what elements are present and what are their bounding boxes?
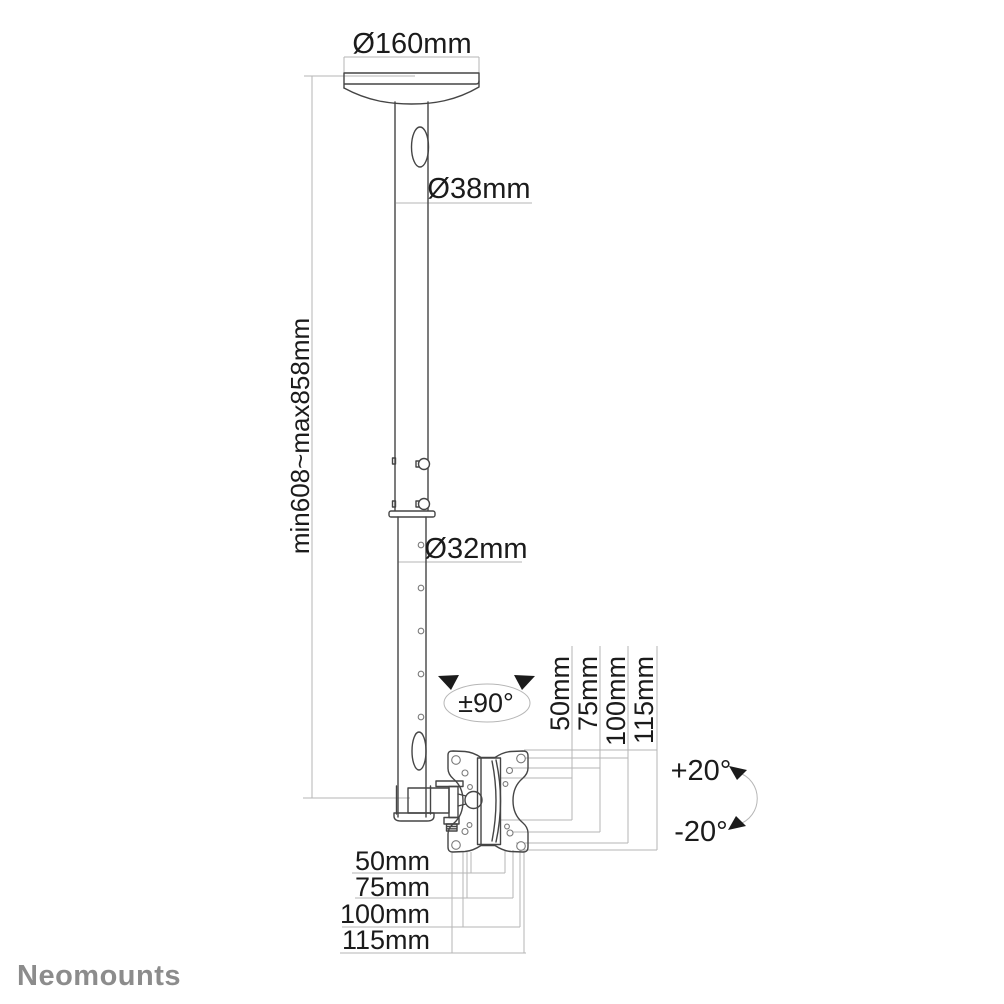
pole-slot-bottom — [412, 732, 426, 770]
vesa-vertical-label-115: 115mm — [629, 656, 659, 744]
ball-joint — [465, 792, 482, 809]
vesa-vertical-label-75: 75mm — [573, 656, 603, 731]
ceiling-mount-diagram: Ø160mm Ø38mm min608~max858mm Ø32mm ±90° … — [0, 0, 1004, 1004]
pole-left-notch-top — [393, 458, 396, 464]
ceiling-plate — [344, 73, 479, 104]
vesa-plate — [448, 751, 528, 852]
dim-ceiling-plate-diameter-label: Ø160mm — [352, 28, 471, 60]
brand-logo: Neomounts — [17, 960, 181, 992]
arm-skirt — [394, 813, 434, 821]
vesa-hole — [452, 756, 461, 765]
collar — [389, 511, 435, 517]
adjustment-knob-bottom — [419, 499, 430, 510]
pole-hole — [418, 628, 424, 634]
vesa-hole — [517, 842, 526, 851]
diagram-canvas: Ø160mm Ø38mm min608~max858mm Ø32mm ±90° … — [0, 0, 1004, 1004]
tilt-arrow-up-icon — [729, 766, 747, 780]
dim-upper-pole-diameter-label: Ø38mm — [427, 173, 530, 205]
tilt-arc — [737, 772, 757, 825]
upper-pole — [393, 102, 430, 511]
vesa-hole — [468, 785, 473, 790]
rotation-arrow-right-icon — [514, 675, 535, 690]
tilt-up-label: +20° — [671, 755, 732, 787]
vesa-hole — [505, 824, 510, 829]
rotation-arrow-left-icon — [438, 675, 459, 690]
vesa-curved-strip — [481, 759, 501, 845]
dim-height-range-label: min608~max858mm — [285, 318, 315, 554]
vesa-horizontal-label-75: 75mm — [355, 872, 430, 902]
vesa-vertical-label-50: 50mm — [545, 656, 575, 731]
adjustment-knob-top — [419, 459, 430, 470]
vesa-vertical-label-100: 100mm — [601, 656, 631, 746]
rotation-label: ±90° — [458, 688, 514, 718]
vesa-hole — [467, 823, 472, 828]
pole-hole — [418, 671, 424, 677]
vesa-hole — [462, 829, 468, 835]
tilt-arrow-down-icon — [728, 816, 746, 830]
pole-hole — [418, 714, 424, 720]
pole-left-notch-bottom — [393, 501, 396, 507]
pole-hole — [418, 542, 424, 548]
vesa-horizontal-label-115: 115mm — [342, 925, 430, 955]
dim-lower-pole-diameter-label: Ø32mm — [424, 533, 527, 565]
vesa-hole — [462, 770, 468, 776]
clamp-bracket — [449, 787, 458, 818]
vesa-hole — [517, 754, 526, 763]
tilt-down-label: -20° — [674, 816, 728, 848]
vesa-hole — [507, 830, 513, 836]
pole-slot-top — [412, 127, 429, 167]
pole-hole — [418, 585, 424, 591]
vesa-hole — [503, 782, 508, 787]
vesa-hole — [452, 841, 461, 850]
vesa-hole — [507, 768, 513, 774]
